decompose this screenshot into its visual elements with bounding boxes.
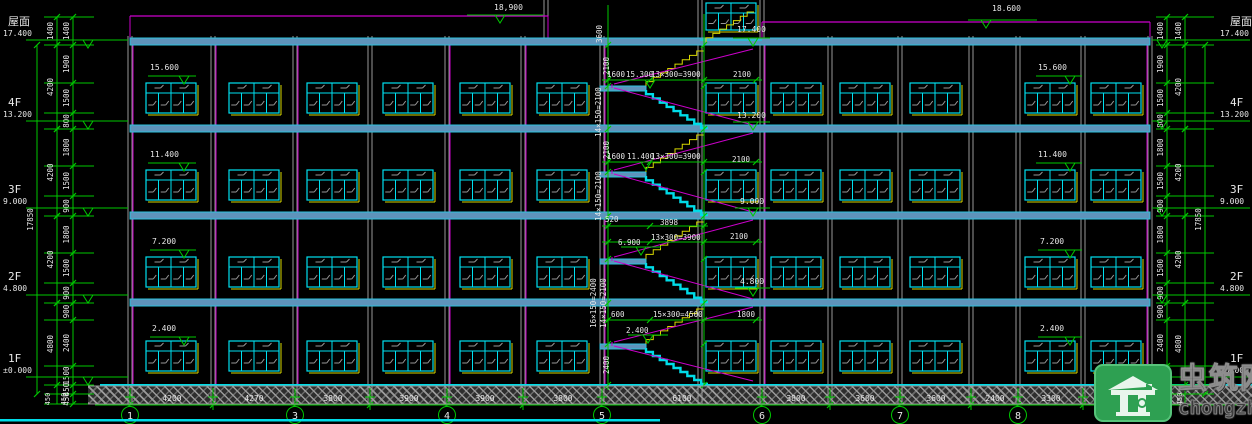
stair-flight-down xyxy=(646,263,708,302)
window-mark xyxy=(942,359,945,363)
window-mark xyxy=(803,359,806,363)
window-mark xyxy=(1032,359,1035,363)
dim-label: 4200 xyxy=(46,250,55,269)
bottom-dim-label: 4270 xyxy=(244,394,263,403)
window-mark xyxy=(1070,359,1073,363)
window-mark xyxy=(721,85,724,88)
window-mark xyxy=(713,275,716,279)
window-mark xyxy=(713,188,716,192)
window-mark xyxy=(244,85,247,88)
window-mark xyxy=(191,275,194,279)
elevation-label: 15.600 xyxy=(150,63,179,72)
window-mark xyxy=(352,188,355,192)
bottom-dim-label: 3600 xyxy=(855,394,874,403)
window-mark xyxy=(327,188,330,192)
stair-annotation: 600 xyxy=(611,310,625,319)
stair-annotation: 13×300=3900 xyxy=(651,152,701,161)
window-mark xyxy=(166,275,169,279)
window-mark xyxy=(557,275,560,279)
window-mark xyxy=(885,359,888,363)
window-mark xyxy=(274,275,277,279)
stair-annotation: 2400 xyxy=(602,355,611,374)
window-mark xyxy=(178,188,181,192)
window-mark xyxy=(1045,101,1048,105)
stair-annotation: 14×150=2100 xyxy=(594,171,603,221)
window-mark xyxy=(721,343,724,346)
stair-annotation: 3600 xyxy=(595,24,604,43)
window-mark xyxy=(880,259,883,262)
window-mark xyxy=(1131,172,1134,175)
window-mark xyxy=(1106,172,1109,175)
window-mark xyxy=(816,101,819,105)
window-mark xyxy=(492,275,495,279)
elevation-label: 2.400 xyxy=(1040,324,1064,333)
window-mark xyxy=(153,275,156,279)
window-mark xyxy=(161,85,164,88)
watermark: 虫筑网 chongzhu.cn xyxy=(1094,364,1252,422)
window-mark xyxy=(855,172,858,175)
window-mark xyxy=(403,101,406,105)
window-mark xyxy=(847,359,850,363)
window-mark xyxy=(467,275,470,279)
floor-elevation: 4.800 xyxy=(1220,284,1244,293)
window-mark xyxy=(339,101,342,105)
dim-label: 4200 xyxy=(1174,250,1183,269)
window-mark xyxy=(423,172,426,175)
house-icon xyxy=(1094,364,1172,422)
stair-annotation: 13×300=3900 xyxy=(651,70,701,79)
window-mark xyxy=(467,359,470,363)
window-mark xyxy=(339,188,342,192)
window-mark xyxy=(552,172,555,175)
window-mark xyxy=(423,259,426,262)
window-mark xyxy=(398,343,401,346)
window-mark xyxy=(352,359,355,363)
window-mark xyxy=(552,343,555,346)
floor-label: 屋面 xyxy=(8,15,30,28)
bottom-dim-label: 3300 xyxy=(1041,394,1060,403)
window-mark xyxy=(347,343,350,346)
window-mark xyxy=(721,172,724,175)
elevation-label: 15.600 xyxy=(1038,63,1067,72)
window-mark xyxy=(746,85,749,88)
bottom-dim-label: 6100 xyxy=(672,394,691,403)
window-mark xyxy=(347,85,350,88)
window-mark xyxy=(186,85,189,88)
window-mark xyxy=(872,275,875,279)
window-mark xyxy=(475,343,478,346)
dim-label: 1500 xyxy=(1156,88,1165,107)
window-mark xyxy=(738,359,741,363)
window-mark xyxy=(352,101,355,105)
floor-slab xyxy=(130,125,1150,132)
window-mark xyxy=(415,101,418,105)
window-mark xyxy=(1032,188,1035,192)
elevation-label: 18.600 xyxy=(992,4,1021,13)
section-drawing: 1400190015008001800150090018001500900900… xyxy=(0,0,1252,424)
window-mark xyxy=(855,343,858,346)
dim-label: 17850 xyxy=(1194,208,1203,231)
axis-bubble-number: 6 xyxy=(759,411,765,422)
window-mark xyxy=(872,188,875,192)
window-mark xyxy=(811,85,814,88)
window-mark xyxy=(582,188,585,192)
window-mark xyxy=(191,188,194,192)
window-mark xyxy=(811,343,814,346)
window-mark xyxy=(778,188,781,192)
dim-label: 900 xyxy=(1156,286,1165,300)
window-mark xyxy=(428,275,431,279)
floor-label: 4F xyxy=(1230,96,1243,109)
floor-elevation: 9.000 xyxy=(1220,197,1244,206)
elevation-label: 17.400 xyxy=(737,25,766,34)
window-mark xyxy=(500,259,503,262)
window-mark xyxy=(816,275,819,279)
window-mark xyxy=(786,85,789,88)
window-mark xyxy=(1098,101,1101,105)
stair-flight-down xyxy=(646,90,708,128)
window-mark xyxy=(236,101,239,105)
window-mark xyxy=(249,101,252,105)
elevation-label: 13.200 xyxy=(737,111,766,120)
window-mark xyxy=(569,359,572,363)
dim-label: 900 xyxy=(62,286,71,300)
window-mark xyxy=(166,188,169,192)
window-mark xyxy=(577,343,580,346)
window-mark xyxy=(398,259,401,262)
window-mark xyxy=(1106,259,1109,262)
window-mark xyxy=(582,275,585,279)
window-mark xyxy=(403,188,406,192)
dim-label: 1900 xyxy=(62,54,71,73)
window-mark xyxy=(153,101,156,105)
floor-label: 4F xyxy=(8,96,21,109)
window-mark xyxy=(751,20,754,24)
window-mark xyxy=(930,101,933,105)
window-mark xyxy=(1070,188,1073,192)
elevation-label: 11.400 xyxy=(1038,150,1067,159)
elevation-triangle xyxy=(981,20,991,28)
window-mark xyxy=(390,359,393,363)
window-mark xyxy=(1057,275,1060,279)
elevation-triangle xyxy=(83,121,93,129)
stair-annotation: 520 xyxy=(605,215,619,224)
window-mark xyxy=(950,172,953,175)
window-mark xyxy=(751,188,754,192)
window-mark xyxy=(917,101,920,105)
window-mark xyxy=(885,188,888,192)
window-mark xyxy=(403,275,406,279)
window-mark xyxy=(557,359,560,363)
window-mark xyxy=(726,275,729,279)
window-mark xyxy=(930,275,933,279)
window-mark xyxy=(480,101,483,105)
window-mark xyxy=(153,188,156,192)
window-mark xyxy=(880,343,883,346)
window-mark xyxy=(1057,359,1060,363)
window-mark xyxy=(847,275,850,279)
window-mark xyxy=(178,359,181,363)
stair-annotation: 2.400 xyxy=(626,326,649,335)
window-mark xyxy=(161,172,164,175)
window-mark xyxy=(582,359,585,363)
window-mark xyxy=(1131,259,1134,262)
window-mark xyxy=(269,343,272,346)
window-mark xyxy=(480,359,483,363)
stair-annotation: 3898 xyxy=(660,218,679,227)
window-mark xyxy=(803,188,806,192)
window-mark xyxy=(880,172,883,175)
window-mark xyxy=(1098,188,1101,192)
window-mark xyxy=(811,172,814,175)
window-mark xyxy=(352,275,355,279)
stair-annotation: 16×150=2400 xyxy=(589,278,598,328)
window-mark xyxy=(1131,343,1134,346)
window-mark xyxy=(244,259,247,262)
window-mark xyxy=(327,101,330,105)
floor-slab xyxy=(130,299,1150,306)
window-mark xyxy=(786,259,789,262)
window-mark xyxy=(327,359,330,363)
window-mark xyxy=(178,275,181,279)
dim-label: 4200 xyxy=(46,77,55,96)
dim-label: 1500 xyxy=(62,171,71,190)
dim-label: 900 xyxy=(1156,304,1165,318)
window-mark xyxy=(500,172,503,175)
window-mark xyxy=(269,172,272,175)
window-mark xyxy=(249,275,252,279)
dim-label: 900 xyxy=(62,199,71,213)
elevation-triangle xyxy=(83,377,93,385)
window-mark xyxy=(925,259,928,262)
window-mark xyxy=(423,343,426,346)
floor-slab xyxy=(130,212,1150,219)
window-mark xyxy=(428,359,431,363)
axis-bubble-number: 7 xyxy=(897,411,903,422)
elevation-label: 4.800 xyxy=(740,277,764,286)
floor-label: 2F xyxy=(8,270,21,283)
window-mark xyxy=(261,275,264,279)
window-mark xyxy=(811,259,814,262)
window-mark xyxy=(955,275,958,279)
stair-annotation: 14×150=2100 xyxy=(599,278,608,328)
window-mark xyxy=(1065,172,1068,175)
window-mark xyxy=(1106,85,1109,88)
window-mark xyxy=(726,20,729,24)
dim-label: 1400 xyxy=(46,21,55,40)
window-mark xyxy=(1070,275,1073,279)
window-mark xyxy=(475,172,478,175)
window-mark xyxy=(505,275,508,279)
elevation-triangle xyxy=(83,208,93,216)
window-mark xyxy=(552,85,555,88)
stair-annotation: 14×150=2100 xyxy=(594,87,603,137)
window-mark xyxy=(166,101,169,105)
window-mark xyxy=(816,359,819,363)
window-mark xyxy=(880,85,883,88)
window-mark xyxy=(803,275,806,279)
stair-annotation: 2100 xyxy=(602,56,611,75)
window-mark xyxy=(492,101,495,105)
window-mark xyxy=(314,188,317,192)
window-mark xyxy=(492,359,495,363)
window-mark xyxy=(161,343,164,346)
window-mark xyxy=(339,359,342,363)
dim-label: 4200 xyxy=(1174,77,1183,96)
elevation-label: 2.400 xyxy=(152,324,176,333)
elevation-label: 18,900 xyxy=(494,3,523,12)
window-mark xyxy=(1136,101,1139,105)
stair-annotation: 15.300 xyxy=(626,70,654,79)
window-mark xyxy=(339,275,342,279)
window-mark xyxy=(314,101,317,105)
window-mark xyxy=(186,172,189,175)
window-mark xyxy=(475,259,478,262)
window-mark xyxy=(860,359,863,363)
foundation-dim: 450 xyxy=(60,393,68,406)
bottom-dim-label: 3600 xyxy=(926,394,945,403)
window-mark xyxy=(942,275,945,279)
window-mark xyxy=(314,359,317,363)
dim-label: 1500 xyxy=(1156,171,1165,190)
window-mark xyxy=(569,275,572,279)
dim-label: 1800 xyxy=(1156,225,1165,244)
elevation-label: 7.200 xyxy=(152,237,176,246)
window-mark xyxy=(1123,101,1126,105)
window-mark xyxy=(415,188,418,192)
window-mark xyxy=(942,101,945,105)
window-mark xyxy=(428,101,431,105)
window-mark xyxy=(274,188,277,192)
window-mark xyxy=(244,172,247,175)
window-mark xyxy=(1065,343,1068,346)
window-mark xyxy=(950,343,953,346)
stair-annotation: 6.900 xyxy=(618,238,641,247)
window-mark xyxy=(178,101,181,105)
window-mark xyxy=(577,85,580,88)
window-mark xyxy=(751,359,754,363)
window-mark xyxy=(1123,359,1126,363)
dim-label: 1500 xyxy=(62,88,71,107)
window-mark xyxy=(713,101,716,105)
stair-annotation: 2100 xyxy=(602,140,611,159)
window-mark xyxy=(480,275,483,279)
window-mark xyxy=(236,275,239,279)
floor-elevation: 9.000 xyxy=(3,197,27,206)
dim-label: 17850 xyxy=(26,208,35,231)
window-mark xyxy=(153,359,156,363)
window-mark xyxy=(1111,275,1114,279)
stair-annotation: 2100 xyxy=(733,70,752,79)
window-mark xyxy=(721,5,724,8)
window-mark xyxy=(1111,101,1114,105)
window-mark xyxy=(778,101,781,105)
elevation-triangle xyxy=(83,295,93,303)
window-mark xyxy=(917,188,920,192)
window-mark xyxy=(327,275,330,279)
window-mark xyxy=(917,359,920,363)
window-mark xyxy=(847,101,850,105)
floor-label: 3F xyxy=(1230,183,1243,196)
window-mark xyxy=(786,343,789,346)
window-mark xyxy=(390,275,393,279)
elevation-triangle xyxy=(643,335,653,343)
viewport-strip xyxy=(0,419,660,422)
window-mark xyxy=(415,359,418,363)
window-mark xyxy=(855,85,858,88)
bottom-dim-label: 3800 xyxy=(786,394,805,403)
stair-annotation: 2100 xyxy=(732,155,751,164)
window-mark xyxy=(467,188,470,192)
window-mark xyxy=(713,20,716,24)
watermark-site-name: 虫筑网 xyxy=(1178,364,1252,393)
dim-label: 1500 xyxy=(62,258,71,277)
window-mark xyxy=(557,188,560,192)
dim-label: 900 xyxy=(1156,199,1165,213)
window-mark xyxy=(269,85,272,88)
floor-label: 3F xyxy=(8,183,21,196)
window-mark xyxy=(726,101,729,105)
floor-label: 屋面 xyxy=(1230,15,1252,28)
window-mark xyxy=(1065,85,1068,88)
window-mark xyxy=(544,101,547,105)
window-mark xyxy=(577,259,580,262)
window-mark xyxy=(261,188,264,192)
bottom-dim-label: 2400 xyxy=(985,394,1004,403)
window-mark xyxy=(860,188,863,192)
window-mark xyxy=(778,359,781,363)
window-mark xyxy=(322,343,325,346)
dim-label: 4200 xyxy=(1174,163,1183,182)
window-mark xyxy=(1111,188,1114,192)
dim-label: 1800 xyxy=(62,138,71,157)
window-mark xyxy=(261,101,264,105)
elevation-label: 11.400 xyxy=(150,150,179,159)
window-mark xyxy=(855,259,858,262)
window-mark xyxy=(390,188,393,192)
window-mark xyxy=(347,172,350,175)
window-mark xyxy=(415,275,418,279)
window-mark xyxy=(872,101,875,105)
floor-elevation: 13.200 xyxy=(1220,110,1249,119)
bottom-dim-label: 3900 xyxy=(399,394,418,403)
window-mark xyxy=(322,85,325,88)
window-mark xyxy=(1032,275,1035,279)
floor-slab xyxy=(130,38,1150,45)
window-mark xyxy=(746,343,749,346)
window-mark xyxy=(500,85,503,88)
window-mark xyxy=(816,188,819,192)
window-mark xyxy=(390,101,393,105)
window-mark xyxy=(552,259,555,262)
stair-flight-down xyxy=(646,176,708,215)
window-mark xyxy=(751,101,754,105)
window-mark xyxy=(860,101,863,105)
floor-label: 1F xyxy=(8,352,21,365)
window-mark xyxy=(726,359,729,363)
window-mark xyxy=(505,188,508,192)
window-mark xyxy=(398,85,401,88)
floor-elevation: ±0.000 xyxy=(3,366,32,375)
dim-label: 4800 xyxy=(46,334,55,353)
window-mark xyxy=(1098,275,1101,279)
window-mark xyxy=(403,359,406,363)
floor-elevation: 17.400 xyxy=(3,29,32,38)
window-mark xyxy=(1032,101,1035,105)
window-mark xyxy=(746,5,749,8)
stair-annotation: 13×300=3900 xyxy=(651,233,701,242)
dim-label: 900 xyxy=(62,304,71,318)
